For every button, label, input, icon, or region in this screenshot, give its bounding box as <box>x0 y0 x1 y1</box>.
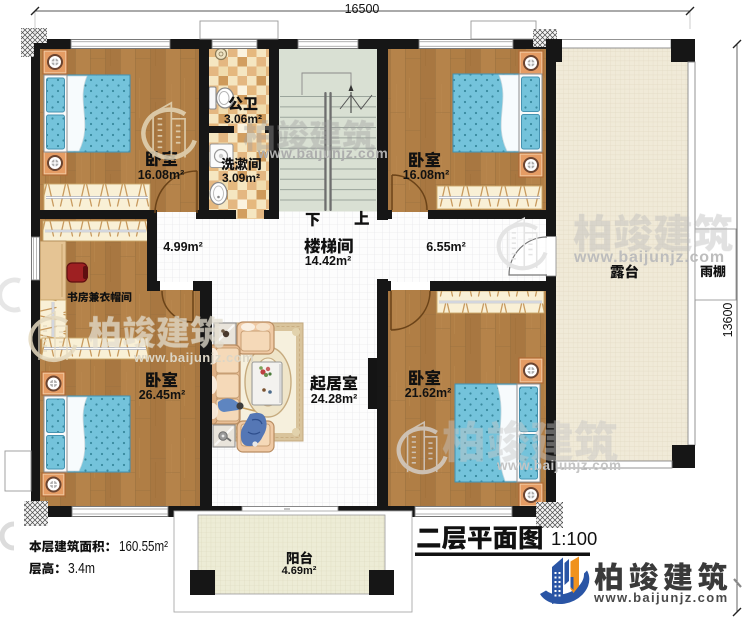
svg-text:16500: 16500 <box>345 2 380 16</box>
svg-text:6.55m²: 6.55m² <box>426 240 466 254</box>
svg-text:www.baijunjz.com: www.baijunjz.com <box>496 458 622 473</box>
svg-text:16.08m²: 16.08m² <box>403 168 450 182</box>
svg-text:160.55m²: 160.55m² <box>119 539 168 555</box>
svg-text:4.99m²: 4.99m² <box>163 240 203 254</box>
svg-text:1:100: 1:100 <box>551 528 597 549</box>
svg-text:21.62m²: 21.62m² <box>405 386 452 400</box>
svg-text:24.28m²: 24.28m² <box>311 392 358 406</box>
svg-text:3.06m²: 3.06m² <box>224 112 262 126</box>
svg-text:www.baijunjz.com: www.baijunjz.com <box>593 590 729 605</box>
svg-text:26.45m²: 26.45m² <box>139 388 186 402</box>
svg-text:www.baijunjz.com: www.baijunjz.com <box>133 350 254 365</box>
svg-text:4.69m²: 4.69m² <box>282 565 317 577</box>
svg-text:3.09m²: 3.09m² <box>222 171 260 185</box>
svg-text:www.baijunjz.com: www.baijunjz.com <box>573 249 725 266</box>
svg-text:www.baijunjz.com: www.baijunjz.com <box>257 145 388 161</box>
svg-text:13600: 13600 <box>721 303 735 338</box>
svg-text:16.08m²: 16.08m² <box>138 168 185 182</box>
svg-text:3.4m: 3.4m <box>68 561 95 577</box>
svg-text:14.42m²: 14.42m² <box>305 254 352 268</box>
